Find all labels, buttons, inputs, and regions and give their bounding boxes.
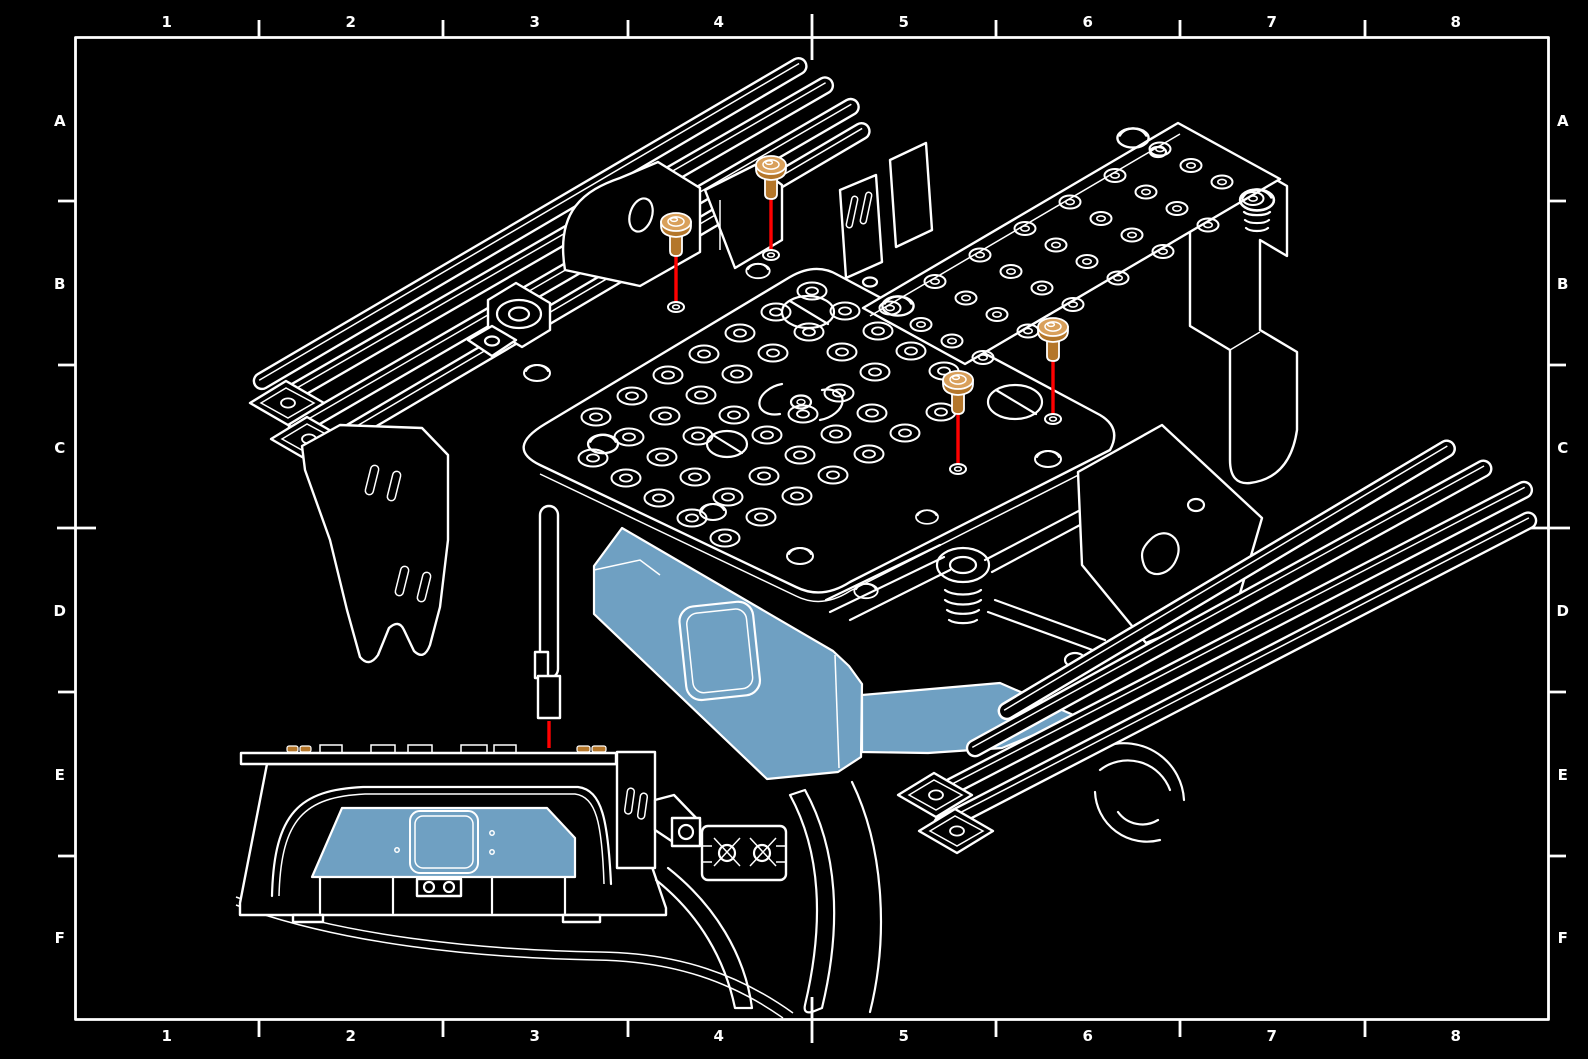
technical-drawing-sheet: 1 2 3 4 5 6 7 8 1 2 3 4 5 6 7 8 A B C D … bbox=[0, 0, 1588, 1059]
antenna-connector-bracket bbox=[617, 752, 700, 868]
screw-head-mark bbox=[592, 746, 606, 752]
cross-extrusion-profile bbox=[702, 826, 786, 880]
screw-head-mark bbox=[287, 746, 298, 752]
mounting-screw bbox=[1038, 318, 1068, 361]
left-rail-bracket bbox=[302, 425, 448, 662]
highlighted-front-panel bbox=[312, 808, 575, 877]
antenna-callout bbox=[535, 506, 560, 748]
screw-head-mark bbox=[300, 746, 311, 752]
screw-head-mark bbox=[577, 746, 590, 752]
exploded-assembly-drawing bbox=[0, 0, 1588, 1059]
front-detail-view bbox=[236, 745, 881, 1018]
